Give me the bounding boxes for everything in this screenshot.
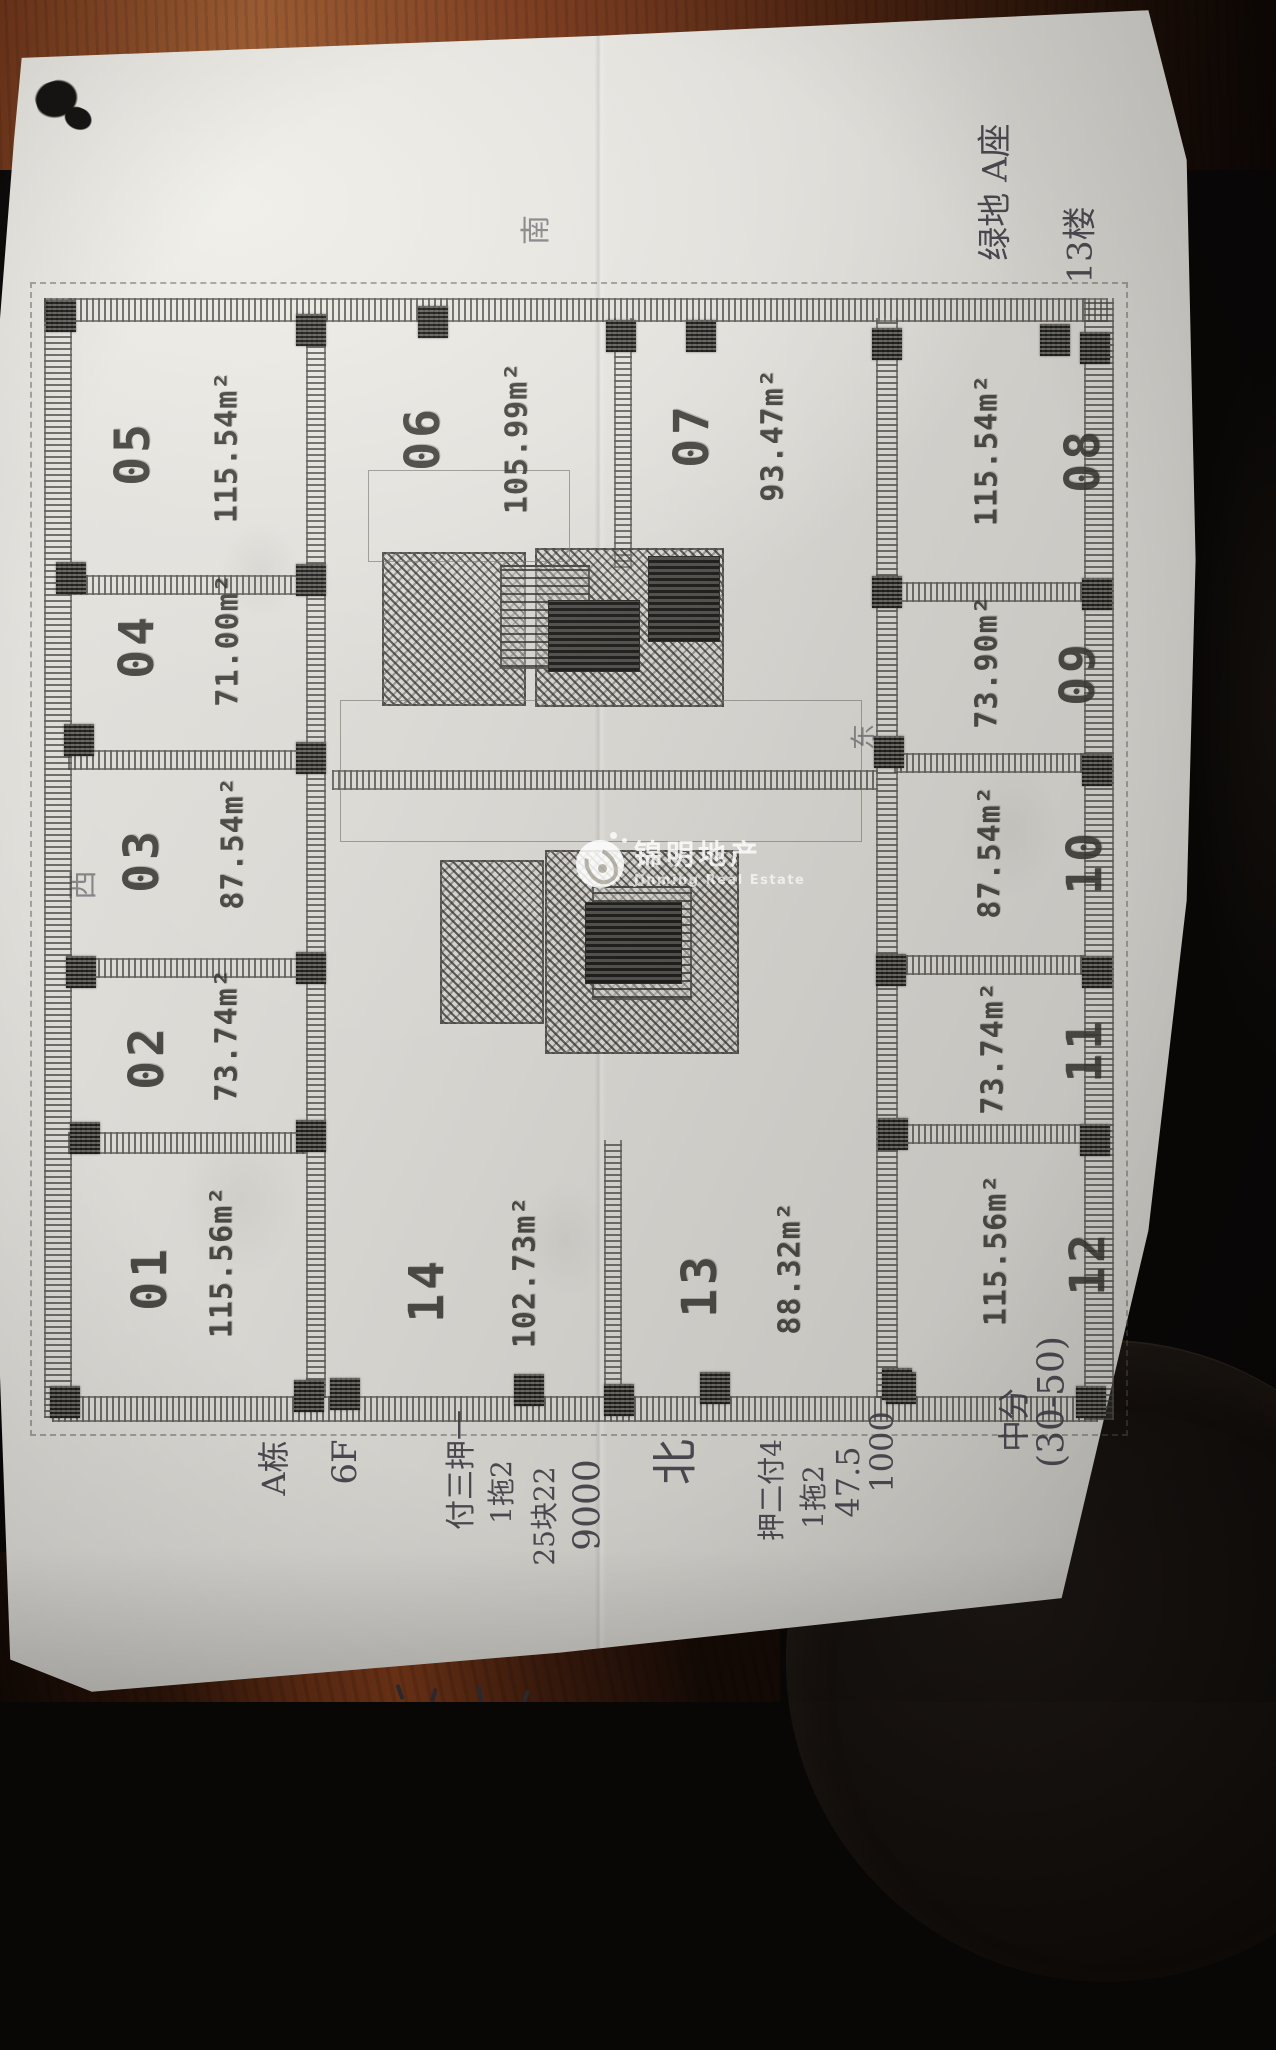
unit-number-13: 13: [672, 1252, 728, 1318]
unit-area-05: 115.54m²: [210, 371, 245, 524]
unit-number-04: 04: [109, 613, 165, 679]
elevator-shaft: [548, 600, 640, 672]
watermark-sparkle-icon: [610, 832, 617, 839]
handwritten-note: 西: [58, 870, 102, 900]
watermark: 锦明地产 Jinming Real Estate: [576, 840, 805, 888]
column-block: [1082, 956, 1112, 988]
unit-area-01: 115.56m²: [205, 1186, 240, 1339]
handwritten-note: 中分: [989, 1388, 1035, 1452]
unit-number-02: 02: [119, 1024, 175, 1090]
unit-area-13: 88.32m²: [773, 1201, 808, 1334]
handwritten-note: 付三押一: [436, 1410, 480, 1530]
column-block: [872, 576, 902, 608]
handwritten-note: 1拖2: [792, 1465, 832, 1529]
handwritten-note: 北: [639, 1439, 705, 1485]
wall: [894, 1124, 1086, 1144]
column-block: [1082, 578, 1112, 610]
unit-number-12: 12: [1060, 1230, 1116, 1296]
handwriting-fragment: [395, 1684, 404, 1700]
elevator-shaft: [585, 902, 682, 984]
column-block: [64, 724, 94, 756]
unit-number-08: 08: [1055, 427, 1111, 493]
unit-area-07: 93.47m²: [756, 368, 791, 501]
unit-area-04: 71.00m²: [211, 573, 246, 706]
pencil-ghost: [180, 1120, 300, 1280]
wall: [52, 1396, 1098, 1422]
column-block: [1080, 1124, 1110, 1156]
corridor-outline: [368, 470, 570, 562]
unit-area-11: 73.74m²: [976, 981, 1011, 1114]
handwritten-note: 25块22: [523, 1466, 563, 1565]
watermark-sparkle-icon: [622, 838, 627, 843]
watermark-text: 锦明地产 Jinming Real Estate: [634, 840, 805, 887]
column-block: [872, 328, 902, 360]
core-block: [440, 860, 544, 1024]
handwritten-note: 南: [511, 215, 555, 245]
unit-area-03: 87.54m²: [216, 776, 251, 909]
unit-area-08: 115.54m²: [970, 374, 1005, 527]
unit-number-01: 01: [122, 1245, 178, 1311]
watermark-logo-icon: [576, 840, 624, 888]
handwriting-fragment: [522, 1690, 530, 1703]
column-block: [606, 320, 636, 352]
corridor-outline: [340, 700, 862, 842]
column-block: [1076, 1386, 1106, 1418]
column-block: [296, 564, 326, 596]
wall: [604, 1140, 622, 1398]
handwritten-note: 东: [844, 724, 881, 750]
handwritten-note: 6F: [325, 1439, 365, 1484]
column-block: [66, 956, 96, 988]
wall: [68, 958, 306, 978]
unit-number-05: 05: [105, 420, 161, 486]
wall: [614, 318, 632, 568]
unit-number-09: 09: [1050, 640, 1106, 706]
handwritten-note: 47.5: [829, 1446, 867, 1517]
column-block: [886, 1372, 916, 1404]
handwritten-note: 1拖2: [480, 1460, 520, 1524]
column-block: [70, 1122, 100, 1154]
wall: [44, 298, 1108, 322]
handwriting-fragment: [430, 1688, 437, 1703]
column-block: [878, 1118, 908, 1150]
handwritten-note: 9000: [568, 1459, 609, 1551]
unit-number-14: 14: [399, 1257, 455, 1323]
column-block: [330, 1378, 360, 1410]
column-block: [294, 1380, 324, 1412]
column-block: [296, 952, 326, 984]
column-block: [514, 1374, 544, 1406]
column-block: [876, 954, 906, 986]
watermark-name-en: Jinming Real Estate: [634, 873, 805, 888]
column-block: [296, 1120, 326, 1152]
column-block: [1080, 332, 1110, 364]
column-block: [296, 742, 326, 774]
handwritten-note: 押二付4: [750, 1439, 790, 1541]
elevator-shaft: [648, 556, 720, 642]
column-block: [46, 300, 76, 332]
unit-number-10: 10: [1057, 829, 1113, 895]
unit-number-03: 03: [114, 827, 170, 893]
handwritten-note: 绿地 A座: [968, 123, 1017, 260]
column-block: [56, 562, 86, 594]
handwritten-note: 13楼: [1053, 206, 1102, 283]
watermark-name-cn: 锦明地产: [634, 840, 805, 869]
handwriting-fragment: [477, 1686, 483, 1702]
column-block: [1082, 754, 1112, 786]
handwritten-note: A栋: [249, 1440, 295, 1495]
column-block: [604, 1384, 634, 1416]
wall: [44, 298, 72, 1418]
column-block: [700, 1372, 730, 1404]
wall: [894, 955, 1086, 975]
wall: [876, 318, 898, 1398]
column-block: [296, 314, 326, 346]
unit-number-06: 06: [395, 405, 451, 471]
column-block: [50, 1386, 80, 1418]
handwritten-note: (30-50): [1032, 1336, 1073, 1468]
unit-area-06: 105.99m²: [500, 362, 535, 515]
wall: [306, 318, 326, 1398]
handwritten-note: 1000: [863, 1411, 901, 1492]
column-block: [1040, 324, 1070, 356]
unit-area-02: 73.74m²: [210, 968, 245, 1101]
unit-area-12: 115.56m²: [979, 1174, 1014, 1327]
column-block: [686, 320, 716, 352]
unit-number-07: 07: [664, 402, 720, 468]
unit-area-14: 102.73m²: [508, 1196, 543, 1349]
unit-area-09: 73.90m²: [970, 595, 1005, 728]
wall: [68, 750, 306, 770]
column-block: [418, 306, 448, 338]
unit-area-10: 87.54m²: [973, 785, 1008, 918]
unit-number-11: 11: [1057, 1017, 1113, 1083]
